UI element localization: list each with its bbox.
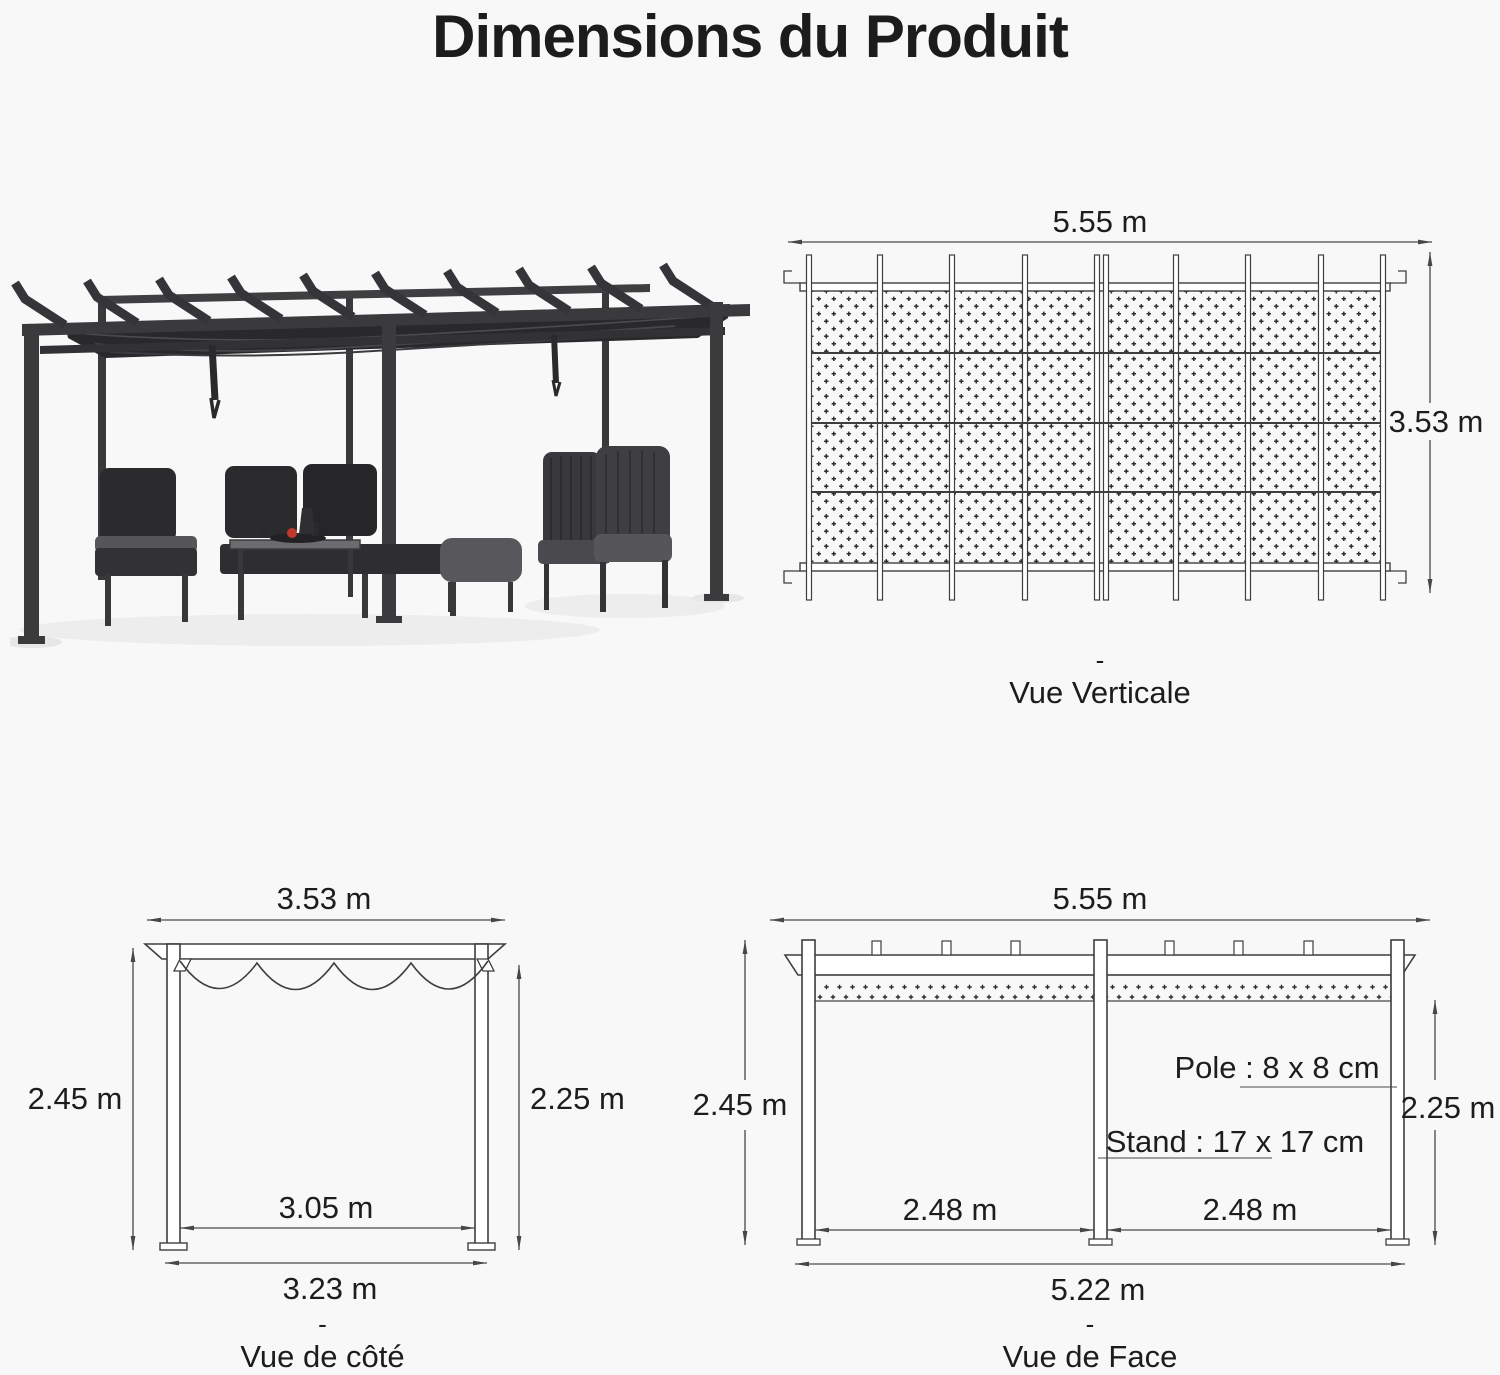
vertical-width-label: 5.55 m bbox=[1053, 204, 1148, 239]
front-right-height-label: 2.25 m bbox=[1401, 1090, 1496, 1125]
rafter-tabs bbox=[872, 941, 1313, 955]
vertical-view-caption: - Vue Verticale bbox=[735, 648, 1465, 710]
outdoor-sofa-set bbox=[95, 464, 522, 626]
pole-size-label: Pole : 8 x 8 cm bbox=[1174, 1050, 1379, 1085]
side-right-height-label: 2.25 m bbox=[530, 1081, 625, 1116]
dimension-left-span: 2.48 m bbox=[815, 1192, 1094, 1230]
top-view-diagram: 5.55 m 3.53 m bbox=[770, 190, 1500, 650]
pergola-product-image bbox=[10, 240, 755, 660]
dimension-top-width: 3.53 m bbox=[147, 881, 505, 920]
front-view-caption: - Vue de Face bbox=[680, 1312, 1500, 1374]
vertical-caption-text: Vue Verticale bbox=[735, 676, 1465, 710]
dimension-right-span: 2.48 m bbox=[1107, 1192, 1391, 1230]
front-caption-text: Vue de Face bbox=[680, 1340, 1500, 1374]
vertical-depth-label: 3.53 m bbox=[1389, 404, 1484, 439]
front-top-width-label: 5.55 m bbox=[1053, 881, 1148, 916]
dimension-base-width: 5.22 m bbox=[795, 1264, 1405, 1307]
dimension-inner-width: 3.05 m bbox=[180, 1190, 475, 1228]
front-left-span-label: 2.48 m bbox=[903, 1192, 998, 1227]
stand-annotation: Stand : 17 x 17 cm bbox=[1098, 1124, 1364, 1159]
page-title: Dimensions du Produit bbox=[0, 2, 1500, 71]
stand-size-label: Stand : 17 x 17 cm bbox=[1106, 1124, 1364, 1159]
side-caption-dash: - bbox=[0, 1312, 645, 1336]
side-inner-width-label: 3.05 m bbox=[279, 1190, 374, 1225]
vertical-caption-dash: - bbox=[735, 648, 1465, 672]
dimension-left-height: 2.45 m bbox=[693, 940, 788, 1245]
wicker-chairs bbox=[538, 446, 672, 612]
front-base-width-label: 5.22 m bbox=[1051, 1272, 1146, 1307]
beam bbox=[145, 944, 505, 959]
pole-annotation: Pole : 8 x 8 cm bbox=[1174, 1050, 1397, 1087]
side-view-caption: - Vue de côté bbox=[0, 1312, 645, 1374]
dimension-base-width: 3.23 m bbox=[165, 1263, 487, 1306]
side-top-width-label: 3.53 m bbox=[277, 881, 372, 916]
front-view-diagram: 5.55 m 2.45 m 2.25 m Pole : 8 x 8 cm Sta… bbox=[680, 875, 1500, 1325]
side-caption-text: Vue de côté bbox=[0, 1340, 645, 1374]
front-right-span-label: 2.48 m bbox=[1203, 1192, 1298, 1227]
dimension-width: 5.55 m bbox=[788, 204, 1432, 242]
dimension-left-height: 2.45 m bbox=[28, 948, 133, 1250]
canopy-brackets bbox=[174, 959, 494, 971]
dimension-right-height: 2.25 m bbox=[519, 965, 625, 1250]
side-left-height-label: 2.45 m bbox=[28, 1081, 123, 1116]
canopy-scallops bbox=[180, 961, 488, 990]
watermelon-accent bbox=[287, 528, 297, 538]
side-base-width-label: 3.23 m bbox=[283, 1271, 378, 1306]
front-caption-dash: - bbox=[680, 1312, 1500, 1336]
front-left-height-label: 2.45 m bbox=[693, 1087, 788, 1122]
dimension-right-height: 2.25 m bbox=[1401, 1000, 1496, 1245]
side-view-diagram: 2.45 m 2.25 m 3.53 m 3.05 m 3.23 m bbox=[20, 875, 660, 1325]
dimension-depth: 3.53 m bbox=[1389, 252, 1484, 593]
dimension-top-width: 5.55 m bbox=[770, 881, 1430, 920]
